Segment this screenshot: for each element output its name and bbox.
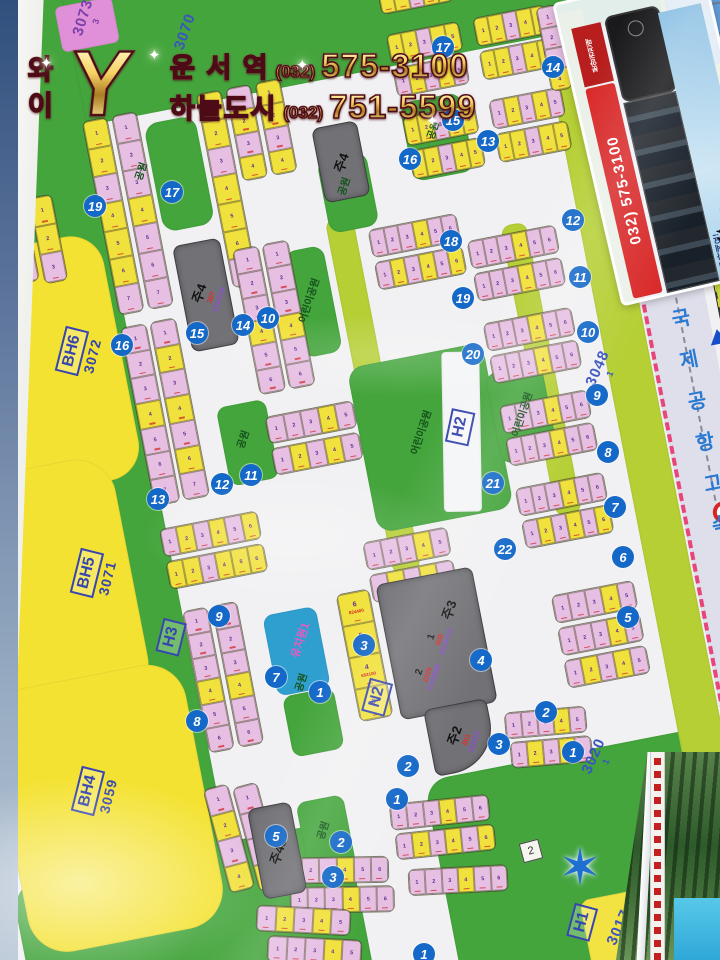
sparkle-icon: ✦ [148,46,161,64]
district-label-H3: H3 [155,617,186,656]
route-circle: 1 [386,788,408,810]
park-label: 공원 [333,175,353,197]
park-label: 어린이공원 [507,390,535,438]
route-circle: 5 [617,606,639,628]
district-label-H2: H2 [445,408,475,447]
district-box: H1 [566,902,598,941]
route-circle: 1 [413,943,435,960]
park-label: 공원 [232,428,252,450]
district-box: H2 [445,408,475,447]
route-circle: 19 [84,195,106,217]
route-circle: 22 [494,538,516,560]
route-circle: 12 [211,473,233,495]
route-circle: 8 [186,710,208,732]
route-circle: 6 [612,546,634,568]
route-circle: 8 [597,441,619,463]
phone-number: 575-3100 [321,47,468,85]
route-circle: 2 [330,831,352,853]
brand-char-2: 이 [28,88,53,124]
route-circle: 2 [397,755,419,777]
route-circle: 16 [111,334,133,356]
route-circle: 15 [186,322,208,344]
brochure-caption-strip [650,752,665,960]
route-circle: 1 [309,681,331,703]
route-circle: 10 [577,321,599,343]
park-label: 공원 [290,671,310,693]
map-photo: 국제공항고속도로 1231231234567123456712345671234… [0,0,720,960]
route-circle: 11 [240,464,262,486]
phone-number: 751-5599 [329,88,476,126]
compass-rose: ✶ [558,842,602,894]
park-label: 어린이공원 [294,276,322,324]
sky-photo [674,898,720,960]
route-circle: 12 [562,209,584,231]
route-circle: 9 [586,384,608,406]
branch-name: 하늘도시 [170,87,277,126]
route-circle: 10 [257,307,279,329]
route-circle: 4 [470,649,492,671]
district-label-H1: H1 [566,902,598,941]
route-circle: 14 [542,56,564,78]
sparkle-icon: ✦ [296,56,309,74]
route-circle: 9 [208,605,230,627]
park-label: 어린이공원 [406,408,434,456]
sparkle-icon: ✦ [426,112,439,130]
route-circle: 5 [265,825,287,847]
route-circle: 18 [440,230,462,252]
kindergarten-label: 유치원1 [287,620,313,660]
agency-overlay: 와 이 Y 운 서 역 (032) 575-3100 하늘도시 (032) 75… [28,46,458,156]
district-label-N2: N2 [361,677,393,716]
route-circle: 21 [482,472,504,494]
branch-name: 운 서 역 [170,46,270,85]
route-circle: 1 [562,741,584,763]
route-circle: 13 [477,130,499,152]
sparkle-icon: ✦ [40,54,53,72]
route-circle: 2 [535,701,557,723]
district-label-BH5: BH53071 [70,548,121,602]
agency-y-logo: Y [65,38,136,130]
route-circle: 17 [161,181,183,203]
block-square-label: 2 [519,839,543,863]
route-circle: 19 [452,287,474,309]
route-circle: 13 [147,488,169,510]
route-circle: 7 [604,496,626,518]
district-label-BH4: BH43059 [71,766,122,820]
park-label: 공원 [130,160,150,182]
route-circle: 3 [353,634,375,656]
contact-line-unseo: 운 서 역 (032) 575-3100 [170,46,477,85]
route-circle: 20 [462,343,484,365]
route-circle: 14 [232,314,254,336]
district-box: H3 [155,617,186,656]
route-circle: 3 [488,733,510,755]
district-label-BH6: BH63072 [55,326,106,380]
route-circle: 7 [265,666,287,688]
district-box: N2 [361,677,393,716]
area-code: (032) [283,103,323,123]
park-label: 공원 [312,819,332,841]
route-circle: 3 [322,866,344,888]
route-circle: 11 [569,266,591,288]
